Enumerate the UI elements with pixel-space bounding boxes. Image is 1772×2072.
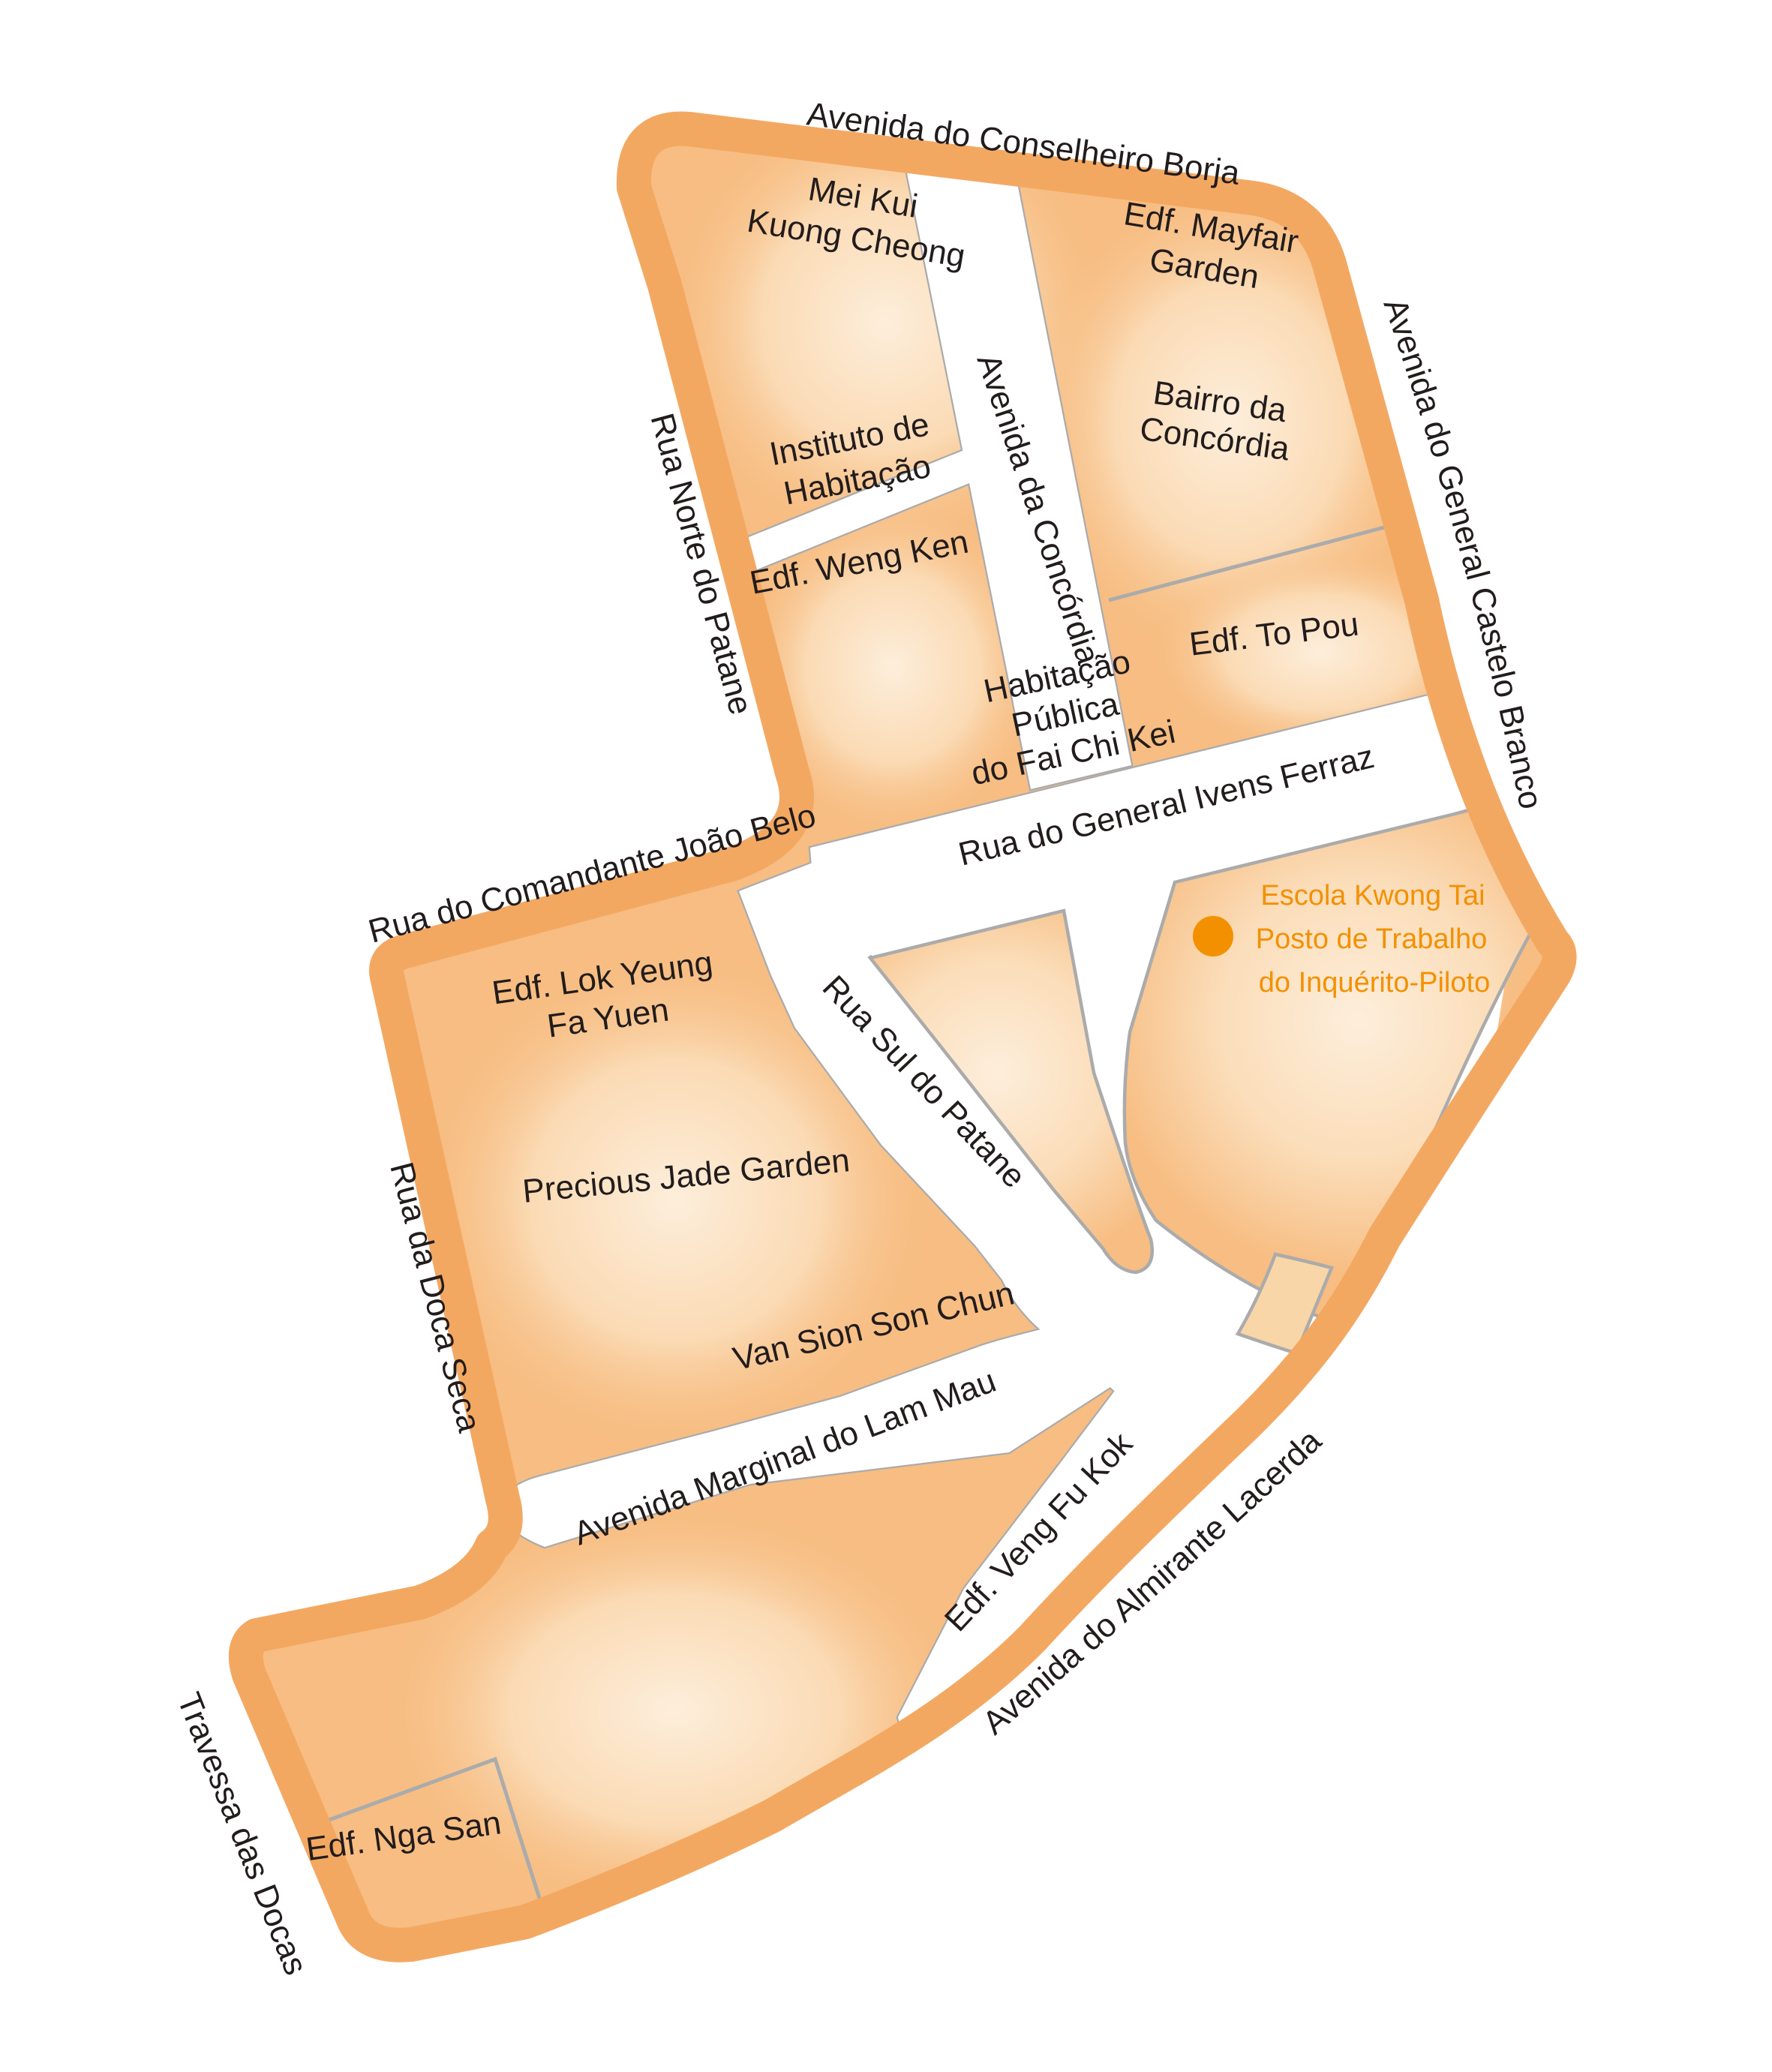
svg-text:do Inquérito-Piloto: do Inquérito-Piloto	[1259, 967, 1490, 998]
svg-text:Posto de Trabalho: Posto de Trabalho	[1256, 923, 1487, 955]
svg-text:Escola Kwong Tai: Escola Kwong Tai	[1260, 880, 1485, 911]
